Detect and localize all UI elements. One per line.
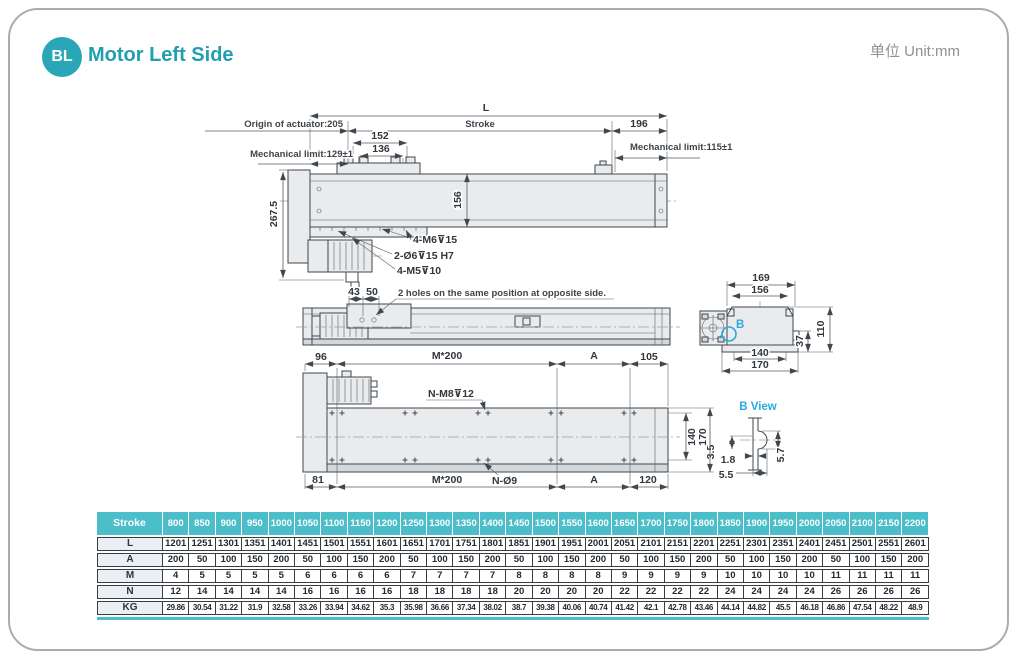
spec-value-cell: 45.5	[770, 601, 796, 615]
spec-value-cell: 50	[506, 553, 532, 567]
spec-value-cell: 36.66	[427, 601, 453, 615]
stroke-header-cell: 1700	[638, 512, 664, 535]
spec-value-cell: 200	[269, 553, 295, 567]
spec-value-cell: 9	[691, 569, 717, 583]
callout-4-m5: 4-M5⊽10	[397, 265, 441, 277]
end-view-drawing: B 169 156 110 37 140 170	[700, 272, 833, 373]
spec-value-cell: 22	[638, 585, 664, 599]
spec-row-a: A200501001502005010015020050100150200501…	[97, 553, 929, 567]
dim-136: 136	[372, 143, 390, 155]
spec-value-cell: 16	[348, 585, 374, 599]
stroke-header-cell: 2150	[876, 512, 902, 535]
spec-value-cell: 11	[876, 569, 902, 583]
spec-value-cell: 32.58	[269, 601, 295, 615]
dim-5-7: 5.7	[775, 448, 787, 463]
spec-value-cell: 6	[374, 569, 400, 583]
spec-value-cell: 6	[348, 569, 374, 583]
spec-value-cell: 9	[612, 569, 638, 583]
spec-value-cell: 1601	[374, 537, 400, 551]
dim-50: 50	[366, 286, 378, 298]
spec-value-cell: 200	[902, 553, 929, 567]
spec-value-cell: 1301	[216, 537, 242, 551]
base-view-drawing: 96 M*200 A 105 N-M8⊽12 140 170 81	[296, 350, 714, 489]
spec-value-cell: 9	[638, 569, 664, 583]
spec-value-cell: 100	[216, 553, 242, 567]
dim-overall-length: L	[483, 102, 490, 114]
b-view-title: B View	[739, 401, 777, 413]
b-view-detail: B View 3.5 1.8 5.5 5.7	[705, 401, 787, 481]
spec-value-cell: 42.78	[665, 601, 691, 615]
spec-value-cell: 20	[559, 585, 585, 599]
spec-value-cell: 11	[902, 569, 929, 583]
stroke-header-cell: 1900	[744, 512, 770, 535]
spec-value-cell: 100	[638, 553, 664, 567]
stroke-header-label: Stroke	[97, 512, 163, 535]
dim-110: 110	[815, 320, 827, 337]
spec-value-cell: 2101	[638, 537, 664, 551]
spec-value-cell: 14	[189, 585, 215, 599]
spec-value-cell: 2251	[718, 537, 744, 551]
opposite-side-note: 2 holes on the same position at opposite…	[398, 288, 606, 299]
spec-value-cell: 200	[480, 553, 506, 567]
spec-value-cell: 200	[163, 553, 189, 567]
spec-value-cell: 200	[374, 553, 400, 567]
stroke-header-cell: 1550	[559, 512, 585, 535]
spec-value-cell: 34.62	[348, 601, 374, 615]
dim-a-bottom: A	[590, 474, 598, 486]
stroke-header-cell: 1300	[427, 512, 453, 535]
stroke-header-cell: 1600	[586, 512, 612, 535]
spec-value-cell: 8	[586, 569, 612, 583]
spec-value-cell: 24	[770, 585, 796, 599]
spec-value-cell: 18	[401, 585, 427, 599]
spec-value-cell: 2451	[823, 537, 849, 551]
spec-value-cell: 43.46	[691, 601, 717, 615]
spec-value-cell: 2551	[876, 537, 902, 551]
spec-value-cell: 31.22	[216, 601, 242, 615]
spec-value-cell: 9	[665, 569, 691, 583]
stroke-header-row: Stroke8008509009501000105011001150120012…	[97, 512, 929, 535]
dim-152: 152	[371, 130, 389, 142]
spec-value-cell: 50	[718, 553, 744, 567]
spec-value-cell: 7	[427, 569, 453, 583]
plan-view-drawing: 43 50 2 holes on the same position at op…	[296, 286, 680, 345]
spec-value-cell: 2051	[612, 537, 638, 551]
b-marker-label: B	[736, 319, 744, 331]
callout-4-m6: 4-M6⊽15	[413, 234, 457, 246]
spec-value-cell: 1501	[321, 537, 347, 551]
spec-value-cell: 1651	[401, 537, 427, 551]
spec-value-cell: 24	[744, 585, 770, 599]
spec-value-cell: 150	[559, 553, 585, 567]
stroke-header-cell: 2200	[902, 512, 929, 535]
dim-81: 81	[312, 474, 324, 486]
stroke-header-cell: 1350	[453, 512, 479, 535]
spec-value-cell: 48.9	[902, 601, 929, 615]
spec-row-n: N121414141416161616181818182020202022222…	[97, 585, 929, 599]
side-view-drawing: L Origin of actuator:205 Stroke 196 152 …	[205, 102, 733, 295]
stroke-header-cell: 1200	[374, 512, 400, 535]
spec-value-cell: 100	[744, 553, 770, 567]
spec-value-cell: 35.3	[374, 601, 400, 615]
spec-value-cell: 7	[401, 569, 427, 583]
spec-value-cell: 10	[770, 569, 796, 583]
spec-value-cell: 44.14	[718, 601, 744, 615]
dim-156-end: 156	[751, 284, 769, 296]
spec-value-cell: 150	[453, 553, 479, 567]
spec-value-cell: 33.94	[321, 601, 347, 615]
spec-value-cell: 18	[480, 585, 506, 599]
spec-value-cell: 150	[770, 553, 796, 567]
stroke-header-cell: 1450	[506, 512, 532, 535]
spec-value-cell: 22	[691, 585, 717, 599]
spec-value-cell: 30.54	[189, 601, 215, 615]
dim-169: 169	[752, 272, 770, 284]
spec-value-cell: 1451	[295, 537, 321, 551]
stroke-header-cell: 850	[189, 512, 215, 535]
stroke-header-cell: 1100	[321, 512, 347, 535]
spec-value-cell: 1801	[480, 537, 506, 551]
spec-value-cell: 1751	[453, 537, 479, 551]
spec-value-cell: 5	[189, 569, 215, 583]
spec-value-cell: 26	[823, 585, 849, 599]
spec-value-cell: 20	[533, 585, 559, 599]
dim-96: 96	[315, 351, 327, 363]
spec-value-cell: 2351	[770, 537, 796, 551]
spec-value-cell: 1701	[427, 537, 453, 551]
row-label-cell: L	[97, 537, 163, 551]
spec-value-cell: 10	[718, 569, 744, 583]
dim-156-side: 156	[452, 191, 464, 209]
stroke-spec-table-wrap: Stroke8008509009501000105011001150120012…	[97, 510, 929, 620]
spec-value-cell: 16	[374, 585, 400, 599]
dim-m200-top: M*200	[432, 350, 463, 362]
spec-row-m: M4555566667777888899991010101011111111	[97, 569, 929, 583]
spec-value-cell: 38.02	[480, 601, 506, 615]
spec-value-cell: 1951	[559, 537, 585, 551]
spec-value-cell: 8	[559, 569, 585, 583]
stroke-header-cell: 900	[216, 512, 242, 535]
spec-value-cell: 10	[744, 569, 770, 583]
spec-value-cell: 46.86	[823, 601, 849, 615]
spec-value-cell: 42.1	[638, 601, 664, 615]
spec-value-cell: 1851	[506, 537, 532, 551]
spec-value-cell: 50	[823, 553, 849, 567]
spec-value-cell: 100	[533, 553, 559, 567]
spec-value-cell: 39.38	[533, 601, 559, 615]
catalog-page: BL Motor Left Side 单位 Unit:mm	[0, 0, 1017, 659]
spec-value-cell: 2301	[744, 537, 770, 551]
spec-value-cell: 33.26	[295, 601, 321, 615]
spec-value-cell: 24	[718, 585, 744, 599]
stroke-spec-table: Stroke8008509009501000105011001150120012…	[97, 510, 929, 617]
spec-value-cell: 8	[533, 569, 559, 583]
dim-105: 105	[640, 351, 658, 363]
spec-value-cell: 14	[216, 585, 242, 599]
row-label-cell: KG	[97, 601, 163, 615]
dim-43: 43	[348, 286, 360, 298]
spec-value-cell: 40.74	[586, 601, 612, 615]
spec-value-cell: 10	[797, 569, 823, 583]
spec-value-cell: 16	[295, 585, 321, 599]
dim-140-end: 140	[751, 347, 769, 359]
callout-2-o6: 2-Ø6⊽15 H7	[394, 250, 454, 262]
spec-value-cell: 47.54	[850, 601, 876, 615]
spec-value-cell: 40.06	[559, 601, 585, 615]
spec-value-cell: 37.34	[453, 601, 479, 615]
spec-value-cell: 7	[480, 569, 506, 583]
spec-value-cell: 31.9	[242, 601, 268, 615]
stroke-header-cell: 1950	[770, 512, 796, 535]
spec-value-cell: 2401	[797, 537, 823, 551]
spec-value-cell: 2151	[665, 537, 691, 551]
dim-37: 37	[794, 335, 806, 347]
stroke-header-cell: 2100	[850, 512, 876, 535]
stroke-header-cell: 800	[163, 512, 189, 535]
spec-row-l: L120112511301135114011451150115511601165…	[97, 537, 929, 551]
stroke-header-cell: 1000	[269, 512, 295, 535]
dim-m200-bottom: M*200	[432, 474, 463, 486]
spec-value-cell: 100	[427, 553, 453, 567]
mechanical-limit-left: Mechanical limit:129±1	[250, 149, 354, 160]
spec-value-cell: 48.22	[876, 601, 902, 615]
spec-value-cell: 5	[242, 569, 268, 583]
spec-value-cell: 11	[850, 569, 876, 583]
spec-value-cell: 5	[269, 569, 295, 583]
dim-170-end: 170	[751, 359, 769, 371]
spec-value-cell: 29.86	[163, 601, 189, 615]
stroke-header-cell: 1050	[295, 512, 321, 535]
stroke-header-cell: 1850	[718, 512, 744, 535]
spec-value-cell: 1901	[533, 537, 559, 551]
spec-value-cell: 24	[797, 585, 823, 599]
spec-value-cell: 26	[876, 585, 902, 599]
spec-value-cell: 11	[823, 569, 849, 583]
spec-value-cell: 46.18	[797, 601, 823, 615]
spec-value-cell: 150	[876, 553, 902, 567]
spec-value-cell: 22	[612, 585, 638, 599]
dim-170-base: 170	[697, 428, 709, 446]
stroke-header-cell: 2050	[823, 512, 849, 535]
stroke-header-cell: 1250	[401, 512, 427, 535]
stroke-header-cell: 1650	[612, 512, 638, 535]
spec-value-cell: 1201	[163, 537, 189, 551]
dim-3-5: 3.5	[705, 445, 717, 460]
dim-1-8: 1.8	[721, 454, 736, 466]
spec-value-cell: 100	[850, 553, 876, 567]
dim-267-5: 267.5	[268, 201, 280, 227]
spec-value-cell: 18	[427, 585, 453, 599]
dim-origin-of-actuator: Origin of actuator:205	[244, 119, 343, 130]
spec-value-cell: 150	[665, 553, 691, 567]
stroke-header-cell: 1750	[665, 512, 691, 535]
spec-value-cell: 1551	[348, 537, 374, 551]
spec-value-cell: 20	[586, 585, 612, 599]
spec-value-cell: 200	[797, 553, 823, 567]
dim-stroke-label: Stroke	[465, 119, 495, 130]
spec-value-cell: 1251	[189, 537, 215, 551]
spec-value-cell: 14	[269, 585, 295, 599]
spec-value-cell: 6	[321, 569, 347, 583]
spec-value-cell: 26	[850, 585, 876, 599]
spec-value-cell: 150	[348, 553, 374, 567]
dim-a-top: A	[590, 350, 598, 362]
spec-value-cell: 2001	[586, 537, 612, 551]
spec-value-cell: 7	[453, 569, 479, 583]
row-label-cell: A	[97, 553, 163, 567]
dim-120: 120	[639, 474, 657, 486]
stroke-header-cell: 1400	[480, 512, 506, 535]
spec-value-cell: 16	[321, 585, 347, 599]
spec-value-cell: 44.82	[744, 601, 770, 615]
spec-value-cell: 35.98	[401, 601, 427, 615]
spec-value-cell: 50	[401, 553, 427, 567]
spec-value-cell: 1401	[269, 537, 295, 551]
stroke-header-cell: 2000	[797, 512, 823, 535]
spec-value-cell: 2501	[850, 537, 876, 551]
spec-value-cell: 22	[665, 585, 691, 599]
dim-196: 196	[630, 118, 648, 130]
spec-value-cell: 2201	[691, 537, 717, 551]
spec-value-cell: 18	[453, 585, 479, 599]
spec-value-cell: 2601	[902, 537, 929, 551]
spec-value-cell: 150	[242, 553, 268, 567]
row-label-cell: M	[97, 569, 163, 583]
spec-value-cell: 50	[612, 553, 638, 567]
spec-value-cell: 200	[586, 553, 612, 567]
spec-value-cell: 26	[902, 585, 929, 599]
spec-value-cell: 100	[321, 553, 347, 567]
spec-value-cell: 6	[295, 569, 321, 583]
spec-value-cell: 5	[216, 569, 242, 583]
callout-n-m8: N-M8⊽12	[428, 388, 474, 400]
dim-5-5: 5.5	[719, 469, 734, 481]
stroke-header-cell: 950	[242, 512, 268, 535]
stroke-header-cell: 1150	[348, 512, 374, 535]
mechanical-limit-right: Mechanical limit:115±1	[630, 142, 733, 153]
row-label-cell: N	[97, 585, 163, 599]
callout-n-o9: N-Ø9	[492, 475, 517, 487]
spec-value-cell: 1351	[242, 537, 268, 551]
spec-value-cell: 200	[691, 553, 717, 567]
spec-value-cell: 38.7	[506, 601, 532, 615]
stroke-header-cell: 1800	[691, 512, 717, 535]
spec-value-cell: 14	[242, 585, 268, 599]
technical-drawing: L Origin of actuator:205 Stroke 196 152 …	[0, 0, 1017, 505]
spec-value-cell: 50	[189, 553, 215, 567]
spec-value-cell: 20	[506, 585, 532, 599]
spec-value-cell: 12	[163, 585, 189, 599]
spec-value-cell: 4	[163, 569, 189, 583]
spec-value-cell: 50	[295, 553, 321, 567]
spec-row-kg: KG29.8630.5431.2231.932.5833.2633.9434.6…	[97, 601, 929, 615]
spec-value-cell: 8	[506, 569, 532, 583]
spec-value-cell: 41.42	[612, 601, 638, 615]
stroke-header-cell: 1500	[533, 512, 559, 535]
